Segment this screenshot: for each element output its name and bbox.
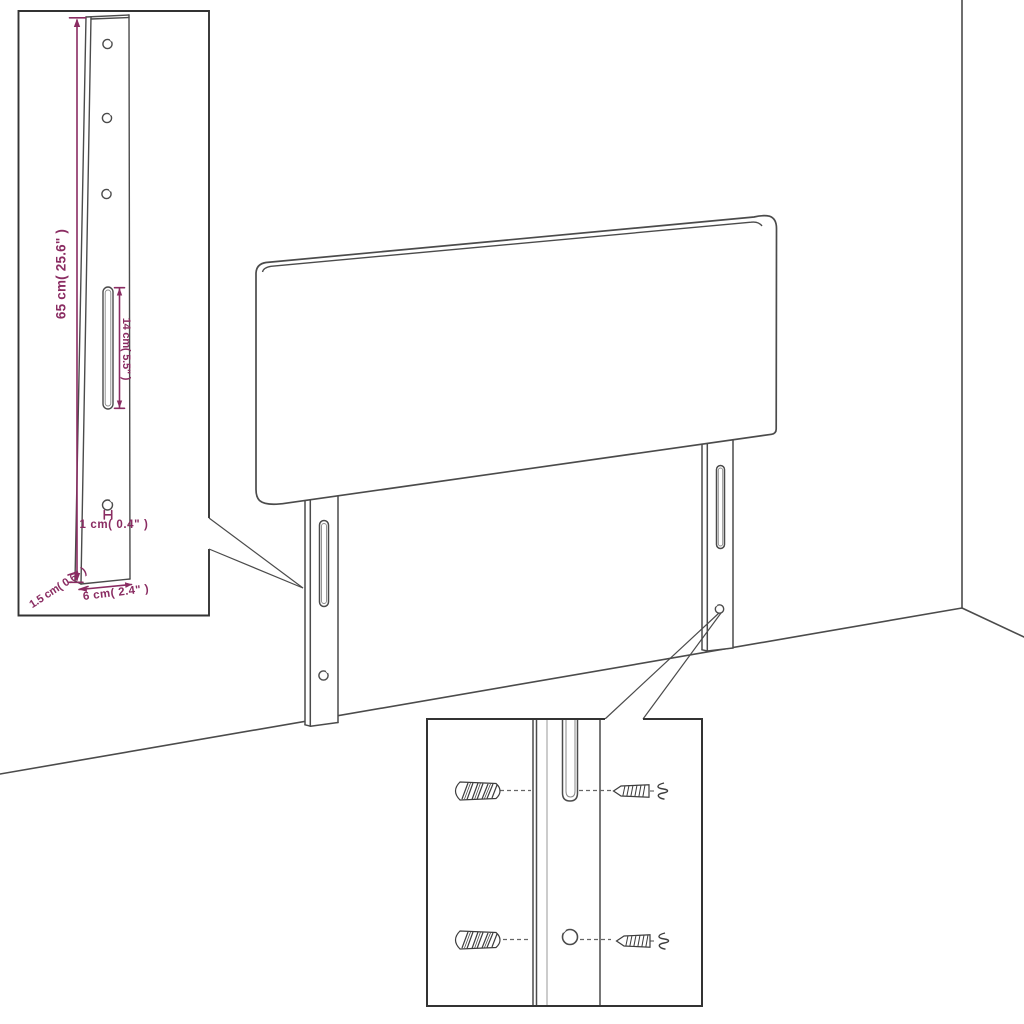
- headboard-panel: [256, 216, 777, 505]
- callout-lines-left: [209, 518, 303, 588]
- dimension-label-slot-length: 14 cm( 5.5" ): [120, 318, 132, 381]
- dimension-label-bracket-height: 65 cm( 25.6" ): [54, 229, 69, 319]
- right-leg-hole: [715, 604, 724, 613]
- headboard-left-leg: [305, 491, 338, 726]
- dimension-label-hole-diameter: 1 cm( 0.4" ): [80, 519, 149, 531]
- strip-hole: [562, 929, 578, 945]
- mounting-detail-inset: [427, 613, 721, 1006]
- wall-plug-icon: [456, 931, 501, 949]
- left-leg-hole: [319, 670, 329, 680]
- diagram-linework: [0, 0, 1024, 1024]
- wall-plug-icon: [456, 782, 501, 800]
- headboard-right-leg: [702, 437, 733, 651]
- product-dimension-diagram: 65 cm( 25.6" ) 14 cm( 5.5" ) 1 cm( 0.4" …: [0, 0, 1024, 1024]
- bracket-slot: [103, 287, 113, 409]
